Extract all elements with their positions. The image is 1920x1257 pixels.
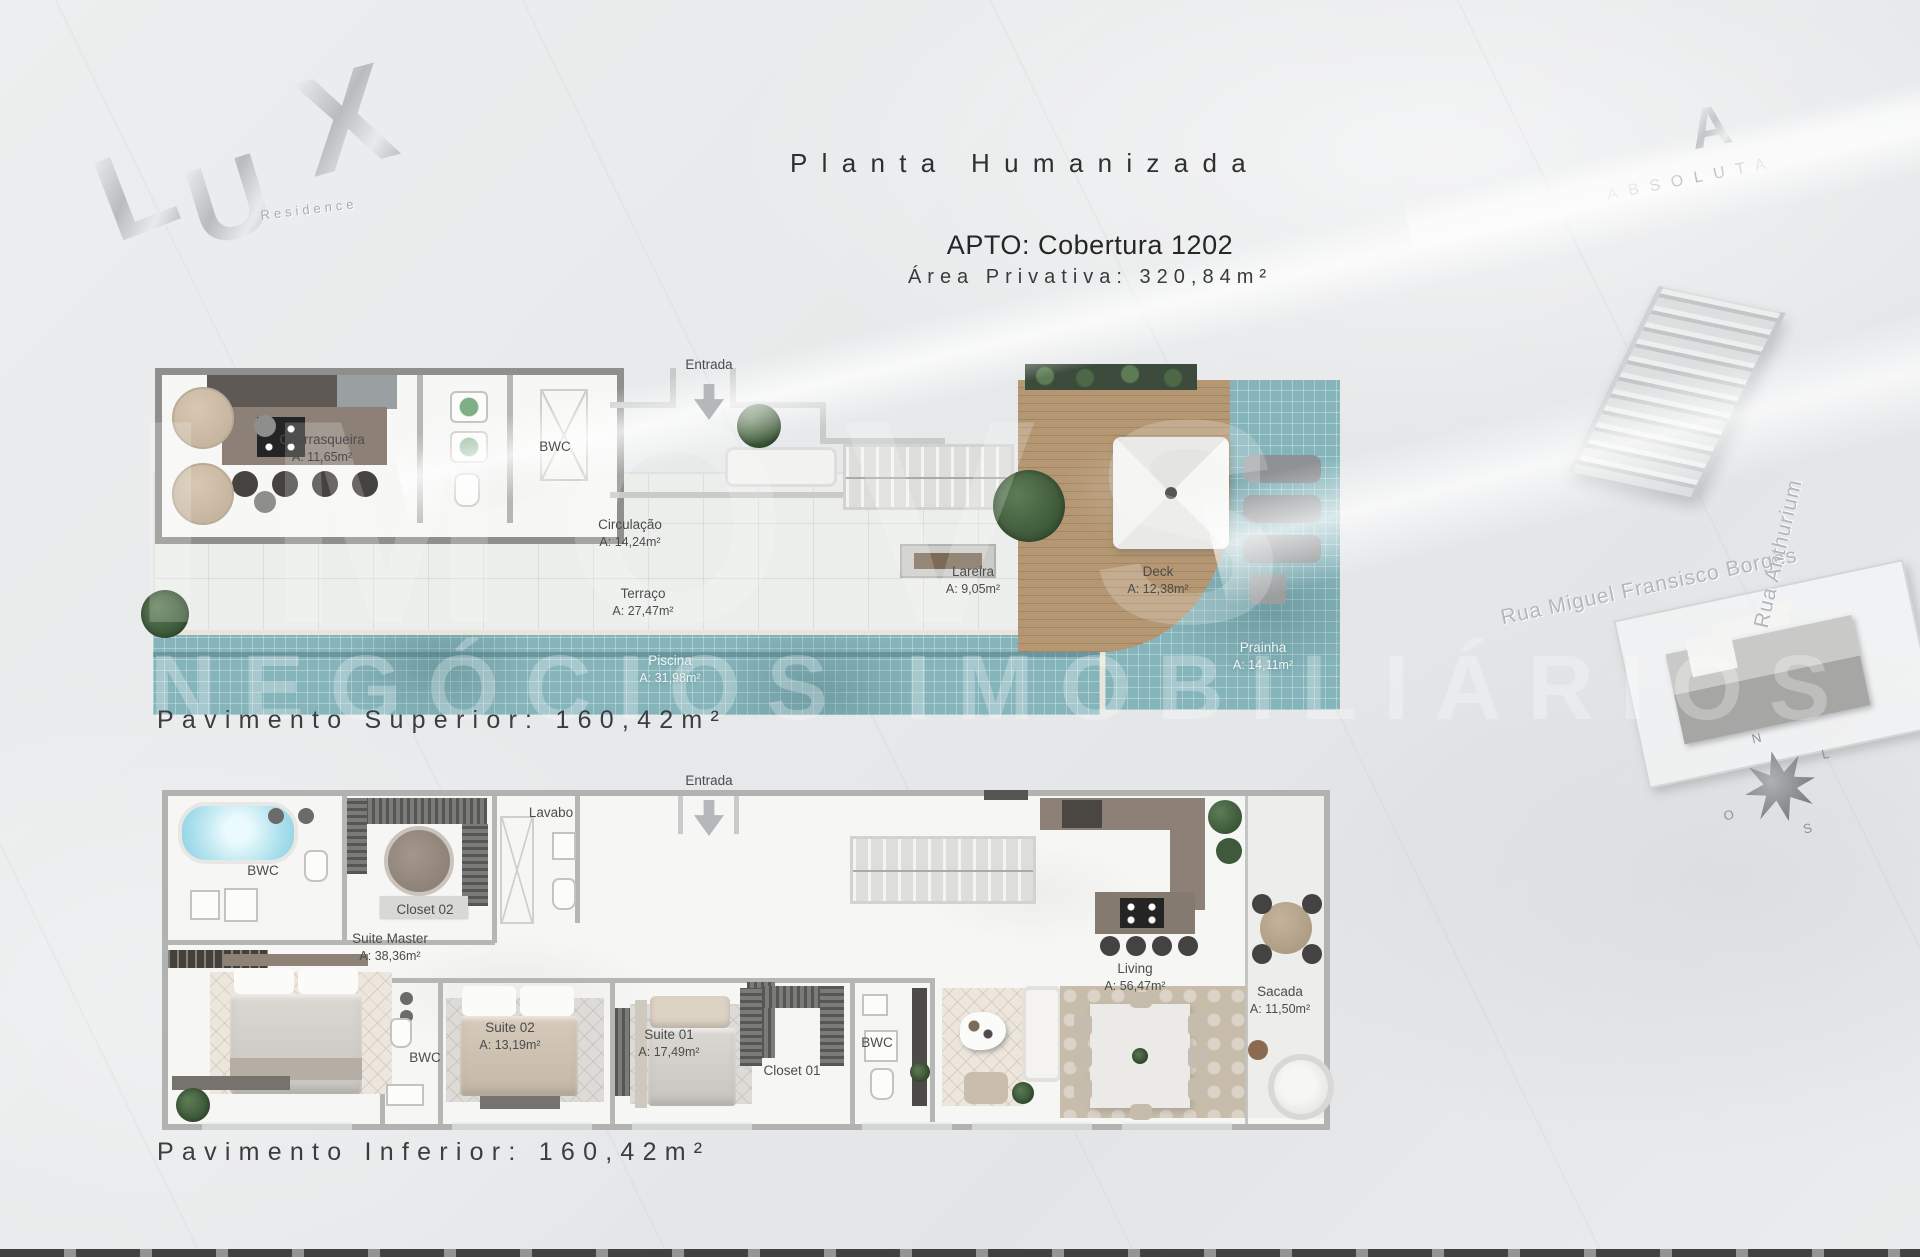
hall-plant — [910, 1062, 930, 1082]
room-name: Terraço — [620, 586, 665, 601]
bwc-master-label: BWC — [228, 862, 298, 880]
room-name: Prainha — [1240, 640, 1287, 655]
room-area: A: 12,38m² — [1088, 581, 1228, 598]
basin-2 — [450, 431, 488, 463]
lux-letter-x: X — [281, 31, 411, 208]
absoluta-monogram: A — [1684, 91, 1736, 163]
balcony-side-table — [1248, 1040, 1268, 1060]
private-area-text: Área Privativa: 320,84m² — [908, 266, 1272, 288]
room-name: Suite 02 — [485, 1020, 535, 1035]
lareira-label: Lareira A: 9,05m² — [903, 563, 1043, 598]
apartment-subtitle-text: APTO: Cobertura 1202 — [947, 230, 1233, 260]
closet01-shelf-left — [740, 988, 762, 1066]
room-name: BWC — [861, 1035, 893, 1050]
bwc02-shower-heads — [400, 992, 413, 1005]
room-name: BWC — [539, 439, 571, 454]
bwc-suite02-label: BWC — [390, 1049, 460, 1067]
compass-west: O — [1722, 807, 1735, 824]
lavabo-toilet — [552, 878, 576, 910]
bistro-table-2 — [172, 463, 234, 525]
shower-enclosure — [540, 389, 588, 481]
room-area: A: 27,47m² — [573, 603, 713, 620]
living-label: Living A: 56,47m² — [1065, 960, 1205, 995]
room-name: Closet 02 — [396, 902, 453, 917]
bwc01-toilet — [870, 1068, 894, 1100]
piscina-label: Piscina A: 31,98m² — [600, 652, 740, 687]
lux-logo: L U X Residence — [86, 49, 424, 257]
deck-label: Deck A: 12,38m² — [1088, 563, 1228, 598]
cooktop-lower — [1120, 898, 1164, 928]
master-plant — [176, 1088, 210, 1122]
bar-stools — [232, 471, 258, 497]
room-area: A: 9,05m² — [903, 581, 1043, 598]
toilet-upper — [454, 473, 480, 507]
bistro-table-1 — [172, 387, 234, 449]
room-name: Lareira — [952, 564, 994, 579]
sun-loungers — [1243, 455, 1321, 483]
wall-bwc01-right — [930, 978, 935, 1124]
corridor-plant — [737, 404, 781, 448]
circulacao-label: Circulação A: 14,24m² — [560, 516, 700, 551]
closet02-label: Closet 02 — [384, 901, 466, 919]
room-name: Circulação — [598, 517, 662, 532]
room-name: Lavabo — [529, 805, 573, 820]
bottom-edge-strip — [0, 1249, 1920, 1257]
room-area: A: 17,49m² — [599, 1044, 739, 1061]
window-4 — [862, 1122, 952, 1130]
bwc-suite01-label: BWC — [842, 1034, 912, 1052]
lux-tagline: Residence — [260, 196, 359, 223]
entry-door-lower — [984, 790, 1028, 800]
entrance-label-upper: Entrada — [674, 356, 744, 374]
bwc02-vanity — [386, 1084, 424, 1106]
lavabo-sink — [552, 832, 576, 860]
island-stools — [1100, 936, 1120, 956]
room-area: A: 13,19m² — [440, 1037, 580, 1054]
page-title-text: Planta Humanizada — [790, 148, 1260, 178]
absoluta-logo: A ABSOLUTA — [1589, 71, 1877, 240]
entrance-label-lower: Entrada — [674, 772, 744, 790]
bwc02-toilet — [390, 1018, 412, 1048]
room-name: Living — [1117, 961, 1152, 976]
living-plant — [1012, 1082, 1034, 1104]
room-area: A: 56,47m² — [1065, 978, 1205, 995]
sofa — [1022, 986, 1062, 1082]
room-area: A: 14,24m² — [560, 534, 700, 551]
room-area: A: 38,36m² — [320, 948, 460, 965]
basin-1 — [450, 391, 488, 423]
prainha-label: Prainha A: 14,11m² — [1193, 639, 1333, 674]
terrace-plant — [141, 590, 189, 638]
room-name: Suite Master — [352, 931, 428, 946]
bwc01-sink — [862, 994, 888, 1016]
kitchen-plants — [1208, 800, 1242, 834]
room-name: Closet 01 — [763, 1063, 820, 1078]
window-2 — [452, 1122, 592, 1130]
closet01-shelf-right — [820, 986, 844, 1066]
bwc-upper-label: BWC — [520, 438, 590, 456]
lower-floor-caption: Pavimento Inferior: 160,42m² — [157, 1138, 710, 1167]
entrance-text-lower: Entrada — [685, 773, 732, 788]
pool-side-table — [1250, 574, 1286, 604]
terraco-label: Terraço A: 27,47m² — [573, 585, 713, 620]
toilet-master — [304, 850, 328, 882]
dining-chair-bottom — [1130, 1104, 1152, 1120]
sacada-label: Sacada A: 11,50m² — [1210, 983, 1350, 1018]
room-name: BWC — [409, 1050, 441, 1065]
twin-sinks — [190, 890, 220, 920]
bwc-wall — [507, 375, 513, 523]
compass-star — [1737, 743, 1824, 830]
private-area-subtitle: Área Privativa: 320,84m² — [0, 266, 1920, 289]
room-name: Sacada — [1257, 984, 1303, 999]
suite02-pillows — [462, 986, 516, 1016]
suite01-pillows — [650, 996, 730, 1028]
stairs-lower — [850, 836, 1036, 904]
suite02-console — [480, 1096, 560, 1109]
closet02-shelf-right — [462, 824, 488, 906]
suite02-label: Suite 02 A: 13,19m² — [440, 1019, 580, 1054]
room-name: BWC — [247, 863, 279, 878]
upper-floor-caption: Pavimento Superior: 160,42m² — [157, 706, 727, 735]
window-5 — [972, 1122, 1092, 1130]
window-3 — [632, 1122, 752, 1130]
entrance-text-upper: Entrada — [685, 357, 732, 372]
room-name: Churrasqueira — [279, 432, 365, 447]
window-1 — [202, 1122, 352, 1130]
room-name: Deck — [1143, 564, 1174, 579]
shower-heads — [268, 808, 284, 824]
balcony-chairs — [1252, 894, 1272, 914]
room-area: A: 11,50m² — [1210, 1001, 1350, 1018]
closet01-shelf-top — [762, 986, 822, 1008]
suite01-label: Suite 01 A: 17,49m² — [599, 1026, 739, 1061]
room-area: A: 11,65m² — [252, 449, 392, 466]
lavabo-door — [500, 816, 534, 924]
floor-plan-sheet: IMOVS NEGÓCIOS IMOBILIÁRIOS Planta Human… — [0, 0, 1920, 1257]
corridor-wall-1 — [610, 402, 672, 408]
entry-wall-right-lower — [734, 796, 739, 834]
window-6 — [1122, 1122, 1232, 1130]
absoluta-wordmark: ABSOLUTA — [1606, 154, 1778, 205]
closet02-shelf-top — [365, 798, 487, 824]
dining-chairs-left — [1074, 1014, 1092, 1036]
upper-caption-text: Pavimento Superior: 160,42m² — [157, 706, 727, 734]
kitchen-appliance — [337, 375, 397, 409]
lavabo-label: Lavabo — [511, 804, 591, 822]
entry-wall-left-lower — [678, 796, 683, 834]
churrasqueira-label: Churrasqueira A: 11,65m² — [252, 431, 392, 466]
room-area: A: 31,98m² — [600, 670, 740, 687]
closet02-shelf-left — [347, 798, 367, 874]
wall-lavabo-left — [492, 796, 497, 943]
daybed-canopy — [1113, 437, 1229, 549]
room-name: Piscina — [648, 653, 692, 668]
compass-south: S — [1801, 820, 1813, 837]
closet02-rug — [384, 826, 454, 896]
site-building-block — [1666, 615, 1871, 744]
compass-north: N — [1750, 730, 1763, 747]
armchair — [964, 1072, 1008, 1104]
master-pillows — [234, 968, 294, 994]
lower-caption-text: Pavimento Inferior: 160,42m² — [157, 1138, 710, 1166]
kitchen-appliance-lower — [1062, 800, 1102, 828]
kitchen-bwc-wall — [417, 375, 423, 523]
room-area: A: 14,11m² — [1193, 657, 1333, 674]
staircase-3d-render — [1568, 286, 1786, 498]
egg-chair — [1268, 1054, 1334, 1120]
hall-cabinet — [912, 988, 927, 1106]
compass-east: L — [1820, 746, 1831, 762]
closet01-label: Closet 01 — [751, 1062, 833, 1080]
room-name: Suite 01 — [644, 1027, 694, 1042]
suite-master-label: Suite Master A: 38,36m² — [320, 930, 460, 965]
stairs-upper — [843, 444, 1014, 510]
lounge-bench — [725, 447, 837, 487]
table-centerpiece — [1132, 1048, 1148, 1064]
dining-chairs-right — [1188, 1014, 1206, 1036]
palm-plant — [993, 470, 1065, 542]
deck-planter — [1025, 364, 1197, 390]
